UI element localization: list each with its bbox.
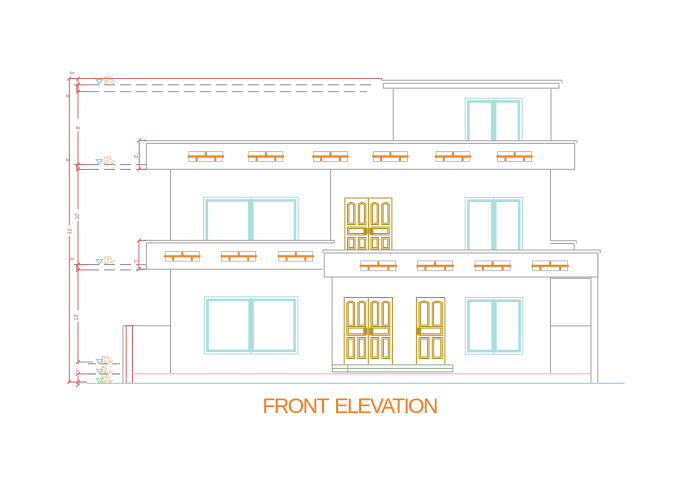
svg-text:3': 3' bbox=[134, 155, 140, 159]
svg-text:3': 3' bbox=[134, 259, 140, 263]
svg-text:6': 6' bbox=[70, 71, 76, 75]
svg-text:6': 6' bbox=[70, 257, 76, 261]
svg-text:10': 10' bbox=[75, 213, 81, 220]
svg-text:32'-0″: 32'-0″ bbox=[104, 80, 116, 85]
svg-text:13': 13' bbox=[74, 314, 80, 321]
svg-text:FRONT ELEVATION: FRONT ELEVATION bbox=[263, 395, 438, 418]
svg-text:+2'-0″: +2'-0″ bbox=[101, 359, 114, 364]
svg-text:12'-0″: 12'-0″ bbox=[104, 260, 116, 265]
svg-text:6': 6' bbox=[66, 158, 72, 162]
svg-text:±0'-0″: ±0'-0″ bbox=[101, 379, 113, 384]
svg-text:8': 8' bbox=[76, 126, 82, 130]
svg-text:32': 32' bbox=[67, 228, 73, 235]
svg-text:22'-0″: 22'-0″ bbox=[104, 160, 116, 165]
svg-text:6': 6' bbox=[66, 94, 72, 98]
